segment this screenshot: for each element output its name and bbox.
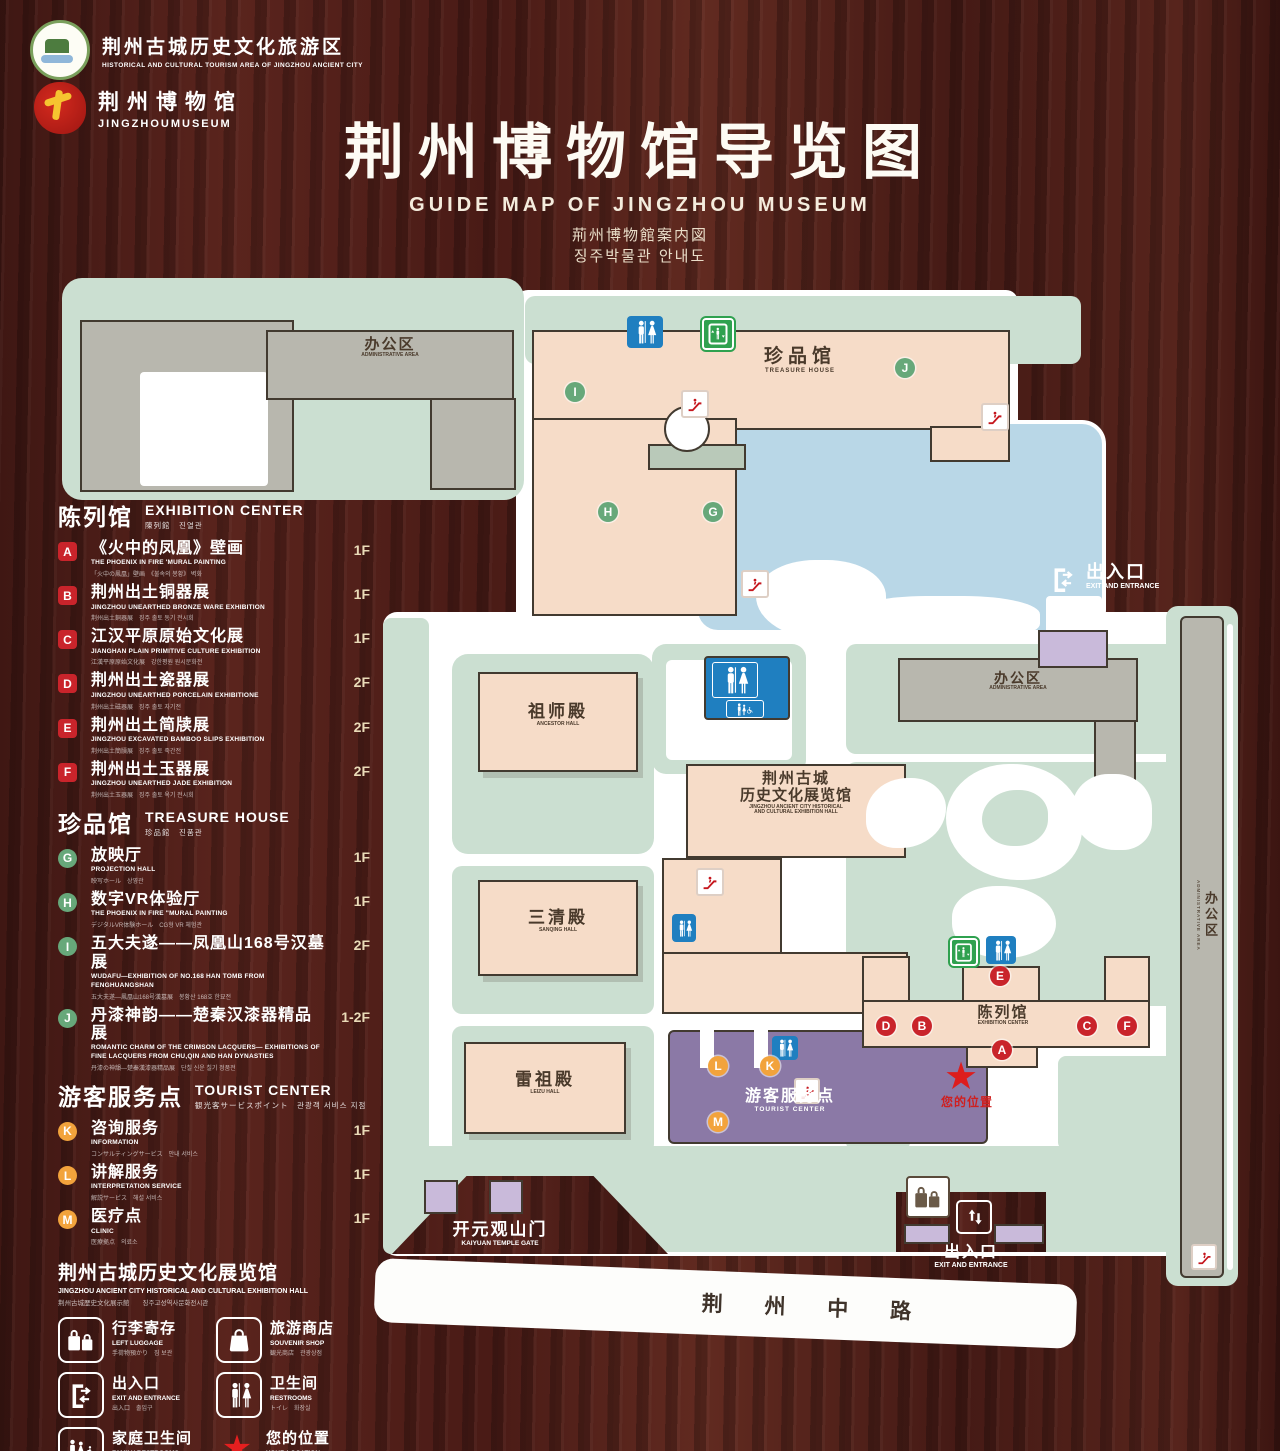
admin-strip-path [1227, 624, 1233, 1270]
elevator-icon [950, 938, 978, 966]
exit-entrance-icon [1048, 564, 1078, 594]
legend-section-title-sub: 珍品館 진품관 [145, 827, 290, 838]
label-leizu-hall: 雷祖殿 LEIZU HALL [464, 1070, 626, 1095]
legend-item-floor: 2F [334, 763, 370, 779]
building-treasure-house [532, 330, 1010, 430]
escalator-icon [981, 403, 1009, 431]
legend-item-floor: 2F [334, 674, 370, 690]
legend-item-zh: 丹漆神韵——楚秦汉漆器精品展 [91, 1007, 327, 1044]
legend-item-zh: 荆州出土铜器展 [91, 584, 327, 602]
label-tourist-center: 游客服务点 TOURIST CENTER [690, 1088, 890, 1114]
legend-item-zh: 荆州出土简牍展 [91, 717, 327, 735]
label-exit-ne: 出入口 EXIT AND ENTRANCE [1086, 562, 1216, 591]
your-location-star-icon: ★ [944, 1058, 978, 1096]
legend-section-title-zh: 游客服务点 [58, 1078, 183, 1112]
legend-icon-en: LEFT LUGGAGE [112, 1340, 176, 1347]
legend-item-badge: C [58, 630, 77, 649]
legend-section-tourist-center: 游客服务点 TOURIST CENTER 観光客サービスポイント 관광객 서비스… [58, 1078, 370, 1246]
escalator-icon [696, 868, 724, 896]
legend-item-sub: 荆州出土玉器展 징주 출토 옥기 전시회 [91, 790, 327, 799]
legend-item-D: D 荆州出土瓷器展 JINGZHOU UNEARTHED PORCELAIN E… [58, 672, 370, 710]
legend-item-sub: 荆州出土簡牘展 징주 출토 죽간전 [91, 746, 327, 755]
legend-icon-souvenir-shop: 旅游商店 SOUVENIR SHOP 観光商店 관광상점 [216, 1317, 370, 1363]
your-location-star-icon: ★ [216, 1427, 258, 1451]
legend-item-en: INFORMATION [91, 1139, 327, 1148]
legend-item-K: K 咨询服务 INFORMATION コンサルティングサービス 안내 서비스 1… [58, 1120, 370, 1158]
legend-icon-en: RESTROOMS [270, 1395, 318, 1402]
tourism-area-emblem-icon [30, 20, 90, 80]
legend-item-sub: デジタルVR体験ホール CG형 VR 체험관 [91, 920, 327, 929]
legend-item-badge: H [58, 893, 77, 912]
history-hall-note-en: JINGZHOU ANCIENT CITY HISTORICAL AND CUL… [58, 1288, 370, 1295]
label-road: 荆 州 中 路 [374, 1275, 1077, 1332]
legend-icon-left-luggage: 行李寄存 LEFT LUGGAGE 手荷物預かり 짐 보관 [58, 1317, 216, 1363]
legend-item-floor: 1-2F [334, 1009, 370, 1025]
legend-item-floor: 1F [334, 1122, 370, 1138]
legend-item-en: PROJECTION HALL [91, 866, 327, 875]
restrooms-icon [712, 662, 758, 698]
label-exit-south: 出入口 EXIT AND ENTRANCE [916, 1244, 1026, 1270]
legend-item-badge: F [58, 763, 77, 782]
legend-item-I: I 五大夫遂——凤凰山168号汉墓展 WUDAFU—EXHIBITION OF … [58, 935, 370, 1000]
label-kaiyuan-gate: 开元观山门 KAIYUAN TEMPLE GATE [380, 1220, 620, 1247]
legend-item-floor: 2F [334, 719, 370, 735]
ground-pocket-right [1058, 1056, 1180, 1150]
legend-section-title-sub: 観光客サービスポイント 관광객 서비스 지점 [195, 1100, 366, 1111]
legend-icon-restrooms: 卫生间 RESTROOMS トイレ 화장실 [216, 1372, 370, 1418]
legend-item-badge: I [58, 937, 77, 956]
legend-item-en: JINGZHOU UNEARTHED BRONZE WARE EXHIBITIO… [91, 604, 327, 613]
legend-icon-zh: 卫生间 [270, 1372, 318, 1393]
legend-icon-zh: 您的位置 [266, 1427, 337, 1448]
legend-item-sub: 映写ホール 상영관 [91, 876, 327, 885]
marker-C: C [1077, 1016, 1097, 1036]
legend-item-E: E 荆州出土简牍展 JINGZHOU EXCAVATED BAMBOO SLIP… [58, 717, 370, 755]
legend-item-B: B 荆州出土铜器展 JINGZHOU UNEARTHED BRONZE WARE… [58, 584, 370, 622]
marker-H: H [598, 502, 618, 522]
gate-kaiyuan-left [424, 1180, 458, 1214]
legend-section-title-en: TREASURE HOUSE [145, 809, 290, 825]
label-admin-east: 办公区 ADMINISTRATIVE AREA [918, 670, 1118, 692]
legend-item-en: ROMANTIC CHARM OF THE CRIMSON LACQUERS— … [91, 1044, 327, 1062]
left-luggage-icon [58, 1317, 104, 1363]
exit-entrance-icon [58, 1372, 104, 1418]
page-title-ko: 징주박물관 안내도 [0, 245, 1280, 266]
legend-section-exhibition-center: 陈列馆 EXHIBITION CENTER 陳列館 진열관 A 《火中的凤凰》壁… [58, 498, 370, 799]
legend-item-C: C 江汉平原原始文化展 JIANGHAN PLAIN PRIMITIVE CUL… [58, 628, 370, 666]
page-title-en: GUIDE MAP OF JINGZHOU MUSEUM [0, 194, 1280, 217]
legend-item-badge: K [58, 1122, 77, 1141]
garden-island [982, 790, 1048, 846]
history-hall-note: 荆州古城历史文化展览馆 JINGZHOU ANCIENT CITY HISTOR… [58, 1258, 370, 1307]
guide-map-poster: 荆州古城历史文化旅游区 HISTORICAL AND CULTURAL TOUR… [0, 0, 1280, 1451]
legend-icon-your-location: ★ 您的位置 YOUR LOCATION あなたの位置 당신의 위치 [216, 1427, 370, 1451]
restrooms-icon [216, 1372, 262, 1418]
legend-item-sub: 解説サービス 해설 서비스 [91, 1193, 327, 1202]
legend-item-sub: 荆州出土磁器展 징주 출토 자기전 [91, 702, 327, 711]
legend-icon-exit-entrance: 出入口 EXIT AND ENTRANCE 出入口 출입구 [58, 1372, 216, 1418]
legend-item-en: THE PHOENIX IN FIRE 'MURAL PAINTING [91, 559, 327, 568]
legend-item-sub: 丹漆の神韻—楚秦漢漆器精品展 단칠 신운 칠기 정품전 [91, 1063, 327, 1072]
legend-item-en: WUDAFU—EXHIBITION OF NO.168 HAN TOMB FRO… [91, 973, 327, 991]
legend-section-title-en: EXHIBITION CENTER [145, 502, 304, 518]
label-exhibition-center: 陈列馆 EXHIBITION CENTER [938, 1004, 1068, 1027]
legend-icon-family-restrooms: 家庭卫生间 FAMILY RESTROOMS 家族用トイレ 가족 화장실 [58, 1427, 216, 1451]
restrooms-icon [772, 1036, 798, 1060]
building-admin-nw-annex [430, 398, 516, 490]
lake-shore-2 [850, 596, 1040, 642]
building-treasure-house-east-step [930, 426, 1010, 462]
history-hall-note-zh: 荆州古城历史文化展览馆 [58, 1258, 370, 1285]
legend-item-badge: M [58, 1210, 77, 1229]
admin-nw-courtyard [140, 372, 268, 486]
marker-L: L [708, 1056, 728, 1076]
escalator-icon [681, 390, 709, 418]
page-title: 荆州博物馆导览图 [0, 104, 1280, 191]
legend-item-floor: 1F [334, 849, 370, 865]
legend-item-floor: 1F [334, 542, 370, 558]
legend-item-zh: 数字VR体验厅 [91, 891, 327, 909]
left-luggage-icon [906, 1176, 950, 1218]
legend-item-floor: 2F [334, 937, 370, 953]
legend-item-floor: 1F [334, 586, 370, 602]
legend-item-G: G 放映厅 PROJECTION HALL 映写ホール 상영관 1F [58, 847, 370, 885]
legend-icon-zh: 出入口 [112, 1372, 180, 1393]
marker-D: D [876, 1016, 896, 1036]
tourism-area-name-zh: 荆州古城历史文化旅游区 [102, 32, 363, 59]
legend-item-zh: 放映厅 [91, 847, 327, 865]
label-admin-nw: 办公区 ADMINISTRATIVE AREA [300, 336, 480, 359]
legend-section-title-zh: 陈列馆 [58, 498, 133, 532]
legend-item-floor: 1F [334, 630, 370, 646]
legend-item-F: F 荆州出土玉器展 JINGZHOU UNEARTHED JADE EXHIBI… [58, 761, 370, 799]
elevator-icon [702, 318, 734, 350]
legend-item-sub: コンサルティングサービス 안내 서비스 [91, 1149, 327, 1158]
legend-item-J: J 丹漆神韵——楚秦汉漆器精品展 ROMANTIC CHARM OF THE C… [58, 1007, 370, 1072]
legend-item-zh: 荆州出土玉器展 [91, 761, 327, 779]
label-ancestor-hall: 祖师殿 ANCESTOR HALL [478, 702, 638, 727]
legend-icon-sub: 観光商店 관광상점 [270, 1348, 334, 1357]
marker-E: E [990, 966, 1010, 986]
legend-item-zh: 荆州出土瓷器展 [91, 672, 327, 690]
marker-M: M [708, 1112, 728, 1132]
legend-item-floor: 1F [334, 893, 370, 909]
legend-icon-zh: 家庭卫生间 [112, 1427, 192, 1448]
history-hall-note-sub: 荆州古城歴史文化展示館 징주고성역사문화전시관 [58, 1297, 370, 1307]
legend-item-en: JINGZHOU UNEARTHED PORCELAIN EXHIBITIONE [91, 692, 327, 701]
legend-item-badge: B [58, 586, 77, 605]
legend-item-badge: L [58, 1166, 77, 1185]
legend-section-treasure-house: 珍品馆 TREASURE HOUSE 珍品館 진품관 G 放映厅 PROJECT… [58, 805, 370, 1072]
legend-item-M: M 医疗点 CLINIC 医療拠点 의료소 1F [58, 1208, 370, 1246]
marker-F: F [1117, 1016, 1137, 1036]
legend-item-floor: 1F [334, 1210, 370, 1226]
legend-item-zh: 咨询服务 [91, 1120, 327, 1138]
legend-section-title-en: TOURIST CENTER [195, 1082, 366, 1098]
escalator-icon [741, 570, 769, 598]
legend-item-badge: E [58, 719, 77, 738]
tourism-area-name-en: HISTORICAL AND CULTURAL TOURISM AREA OF … [102, 62, 363, 69]
legend-item-badge: A [58, 542, 77, 561]
escalator-icon [1191, 1244, 1217, 1270]
label-treasure-house: 珍品馆 TREASURE HOUSE [700, 346, 900, 375]
legend-item-en: CLINIC [91, 1228, 327, 1237]
marker-G: G [703, 502, 723, 522]
marker-B: B [912, 1016, 932, 1036]
label-sanqing-hall: 三清殿 SANQING HALL [478, 908, 638, 933]
legend-item-zh: 医疗点 [91, 1208, 327, 1226]
legend-icon-sub: 手荷物預かり 짐 보관 [112, 1348, 176, 1357]
legend-item-zh: 江汉平原原始文化展 [91, 628, 327, 646]
legend-item-sub: 江漢平原原始文化展 강한평원 원시문화전 [91, 657, 327, 666]
label-your-location: 您的位置 [912, 1096, 1022, 1110]
tourism-area-logo: 荆州古城历史文化旅游区 HISTORICAL AND CULTURAL TOUR… [30, 20, 363, 80]
legend-item-zh: 五大夫遂——凤凰山168号汉墓展 [91, 935, 327, 972]
legend-item-en: THE PHOENIX IN FIRE "MURAL PAINTING [91, 910, 327, 919]
legend-icon-zh: 行李寄存 [112, 1317, 176, 1338]
legend-item-sub: 医療拠点 의료소 [91, 1237, 327, 1246]
legend-icon-en: SOUVENIR SHOP [270, 1340, 334, 1347]
legend-item-en: JINGZHOU EXCAVATED BAMBOO SLIPS EXHIBITI… [91, 736, 327, 745]
legend-item-sub: 「火中の鳳凰」壁画 《불속의 봉황》 벽화 [91, 569, 327, 578]
legend-item-badge: J [58, 1009, 77, 1028]
gate-south-right [994, 1224, 1044, 1244]
marker-I: I [565, 382, 585, 402]
legend-item-H: H 数字VR体验厅 THE PHOENIX IN FIRE "MURAL PAI… [58, 891, 370, 929]
restrooms-icon [986, 936, 1016, 964]
page-title-ja: 荊州博物館案内図 [0, 224, 1280, 245]
marker-K: K [760, 1056, 780, 1076]
legend-section-title-sub: 陳列館 진열관 [145, 520, 304, 531]
legend-item-en: INTERPRETATION SERVICE [91, 1183, 327, 1192]
legend-item-A: A 《火中的凤凰》壁画 THE PHOENIX IN FIRE 'MURAL P… [58, 540, 370, 578]
family-restrooms-icon [726, 700, 764, 718]
restrooms-icon [672, 914, 696, 942]
legend-item-sub: 荆州出土銅器展 징주 출토 동기 전시회 [91, 613, 327, 622]
legend-item-sub: 五大夫遂—鳳凰山168号漢墓展 봉황산 168호 한묘전 [91, 992, 327, 1001]
legend-section-title-zh: 珍品馆 [58, 805, 133, 839]
road-jingzhou-middle: 荆 州 中 路 [374, 1258, 1078, 1349]
legend-item-badge: G [58, 849, 77, 868]
family-restrooms-icon [58, 1427, 104, 1451]
legend-item-en: JINGZHOU UNEARTHED JADE EXHIBITION [91, 780, 327, 789]
legend-icon-sub: 出入口 출입구 [112, 1403, 180, 1412]
legend-icon-sub: トイレ 화장실 [270, 1403, 318, 1412]
restrooms-icon [627, 316, 663, 348]
legend-item-zh: 讲解服务 [91, 1164, 327, 1182]
gate-kaiyuan-right [489, 1180, 523, 1214]
souvenir-shop-icon [216, 1317, 262, 1363]
legend-item-badge: D [58, 674, 77, 693]
legend-item-zh: 《火中的凤凰》壁画 [91, 540, 327, 558]
marker-J: J [895, 358, 915, 378]
exit-updown-icon [956, 1200, 992, 1234]
marker-A: A [992, 1040, 1012, 1060]
legend-item-floor: 1F [334, 1166, 370, 1182]
gate-ne [1038, 630, 1108, 668]
legend-icon-zh: 旅游商店 [270, 1317, 334, 1338]
gate-south-left [904, 1224, 950, 1244]
legend-item-en: JIANGHAN PLAIN PRIMITIVE CULTURE EXHIBIT… [91, 648, 327, 657]
legend-icon-en: EXIT AND ENTRANCE [112, 1395, 180, 1402]
legend-item-L: L 讲解服务 INTERPRETATION SERVICE 解説サービス 해설 … [58, 1164, 370, 1202]
label-admin-strip: 办公区 ADMINISTRATIVE AREA [1186, 880, 1220, 951]
legend-panel: 陈列馆 EXHIBITION CENTER 陳列館 진열관 A 《火中的凤凰》壁… [58, 496, 370, 1451]
